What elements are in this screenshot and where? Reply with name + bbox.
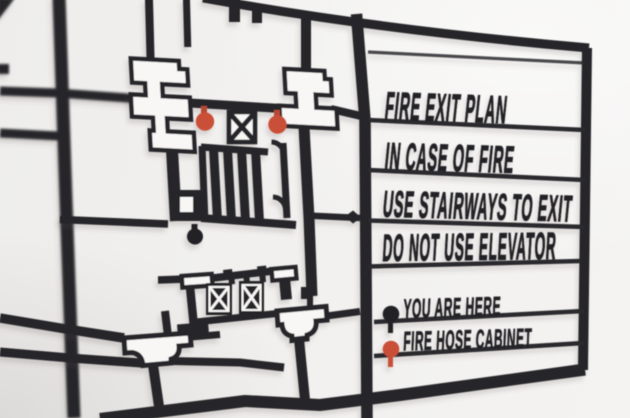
svg-text:IN CASE OF FIRE: IN CASE OF FIRE (383, 136, 517, 182)
svg-text:YOU ARE HERE: YOU ARE HERE (403, 292, 502, 324)
svg-text:FIRE EXIT PLAN: FIRE EXIT PLAN (383, 85, 510, 133)
svg-text:DO NOT USE ELEVATOR: DO NOT USE ELEVATOR (381, 226, 557, 271)
svg-text:FIRE HOSE CABINET: FIRE HOSE CABINET (403, 324, 533, 357)
svg-text:USE STAIRWAYS TO EXIT: USE STAIRWAYS TO EXIT (381, 184, 574, 230)
